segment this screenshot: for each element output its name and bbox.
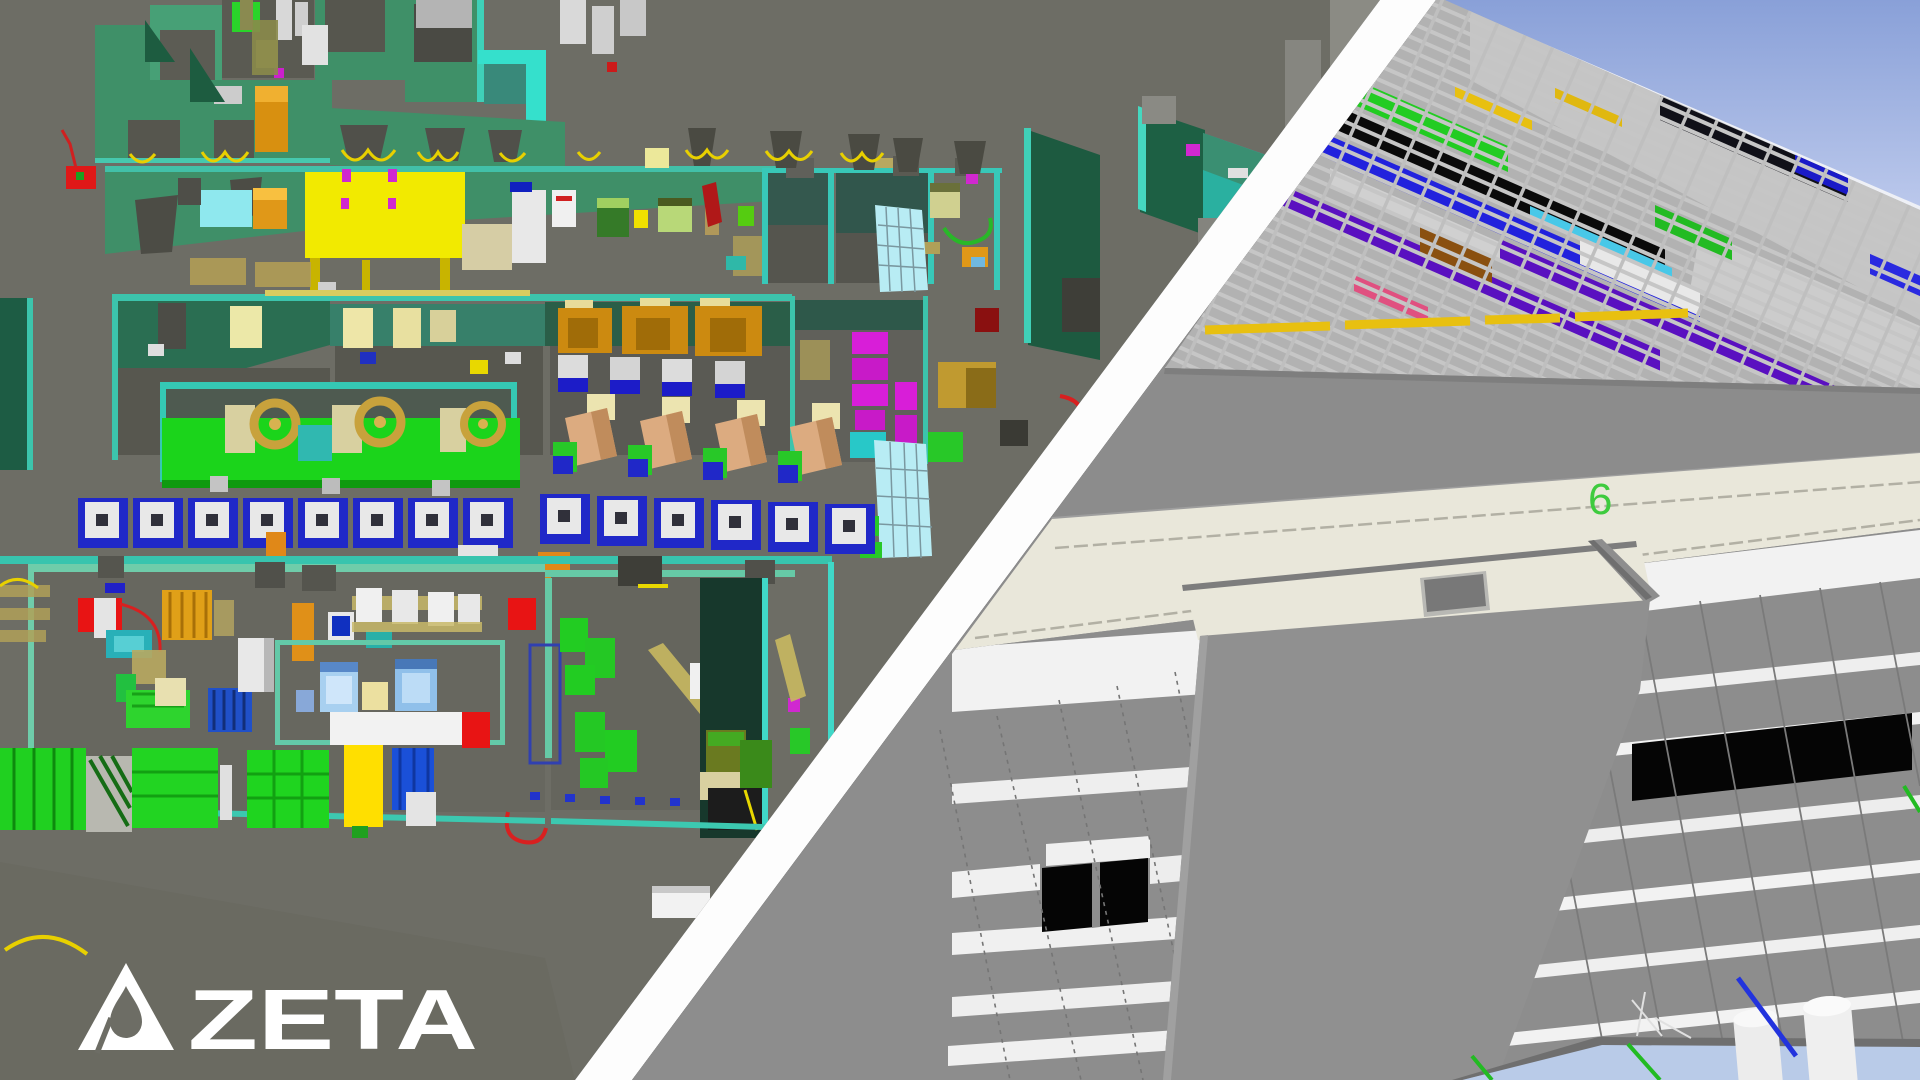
svg-text:6: 6 [1588, 475, 1612, 524]
svg-text:ZETA: ZETA [188, 973, 478, 1068]
